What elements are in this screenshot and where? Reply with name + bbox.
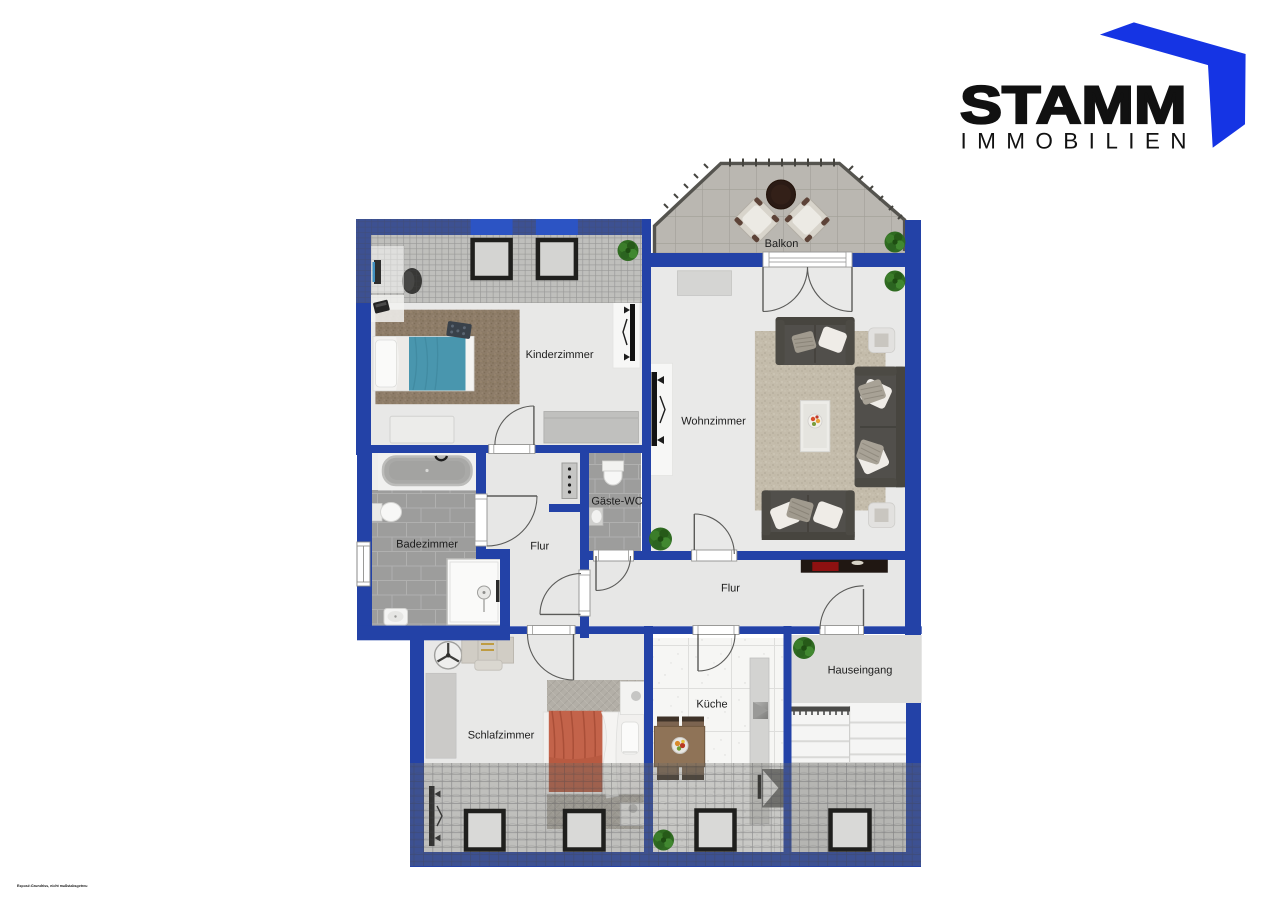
svg-text:Hauseingang: Hauseingang (828, 665, 893, 677)
svg-text:STAMM: STAMM (960, 76, 1187, 135)
svg-text:Badezimmer: Badezimmer (396, 539, 458, 551)
svg-text:Flur: Flur (721, 583, 740, 595)
svg-text:Balkon: Balkon (765, 238, 799, 250)
svg-text:IMMOBILIEN: IMMOBILIEN (961, 129, 1187, 154)
svg-text:Schlafzimmer: Schlafzimmer (468, 730, 535, 742)
svg-text:Küche: Küche (696, 699, 727, 711)
svg-text:Flur: Flur (530, 541, 549, 553)
svg-text:Kinderzimmer: Kinderzimmer (526, 349, 594, 361)
svg-text:Gäste-WC: Gäste-WC (591, 496, 642, 508)
svg-text:Exposé-Grundriss, nicht maßsta: Exposé-Grundriss, nicht maßstabsgetreu (17, 884, 88, 888)
svg-text:Wohnzimmer: Wohnzimmer (681, 416, 746, 428)
